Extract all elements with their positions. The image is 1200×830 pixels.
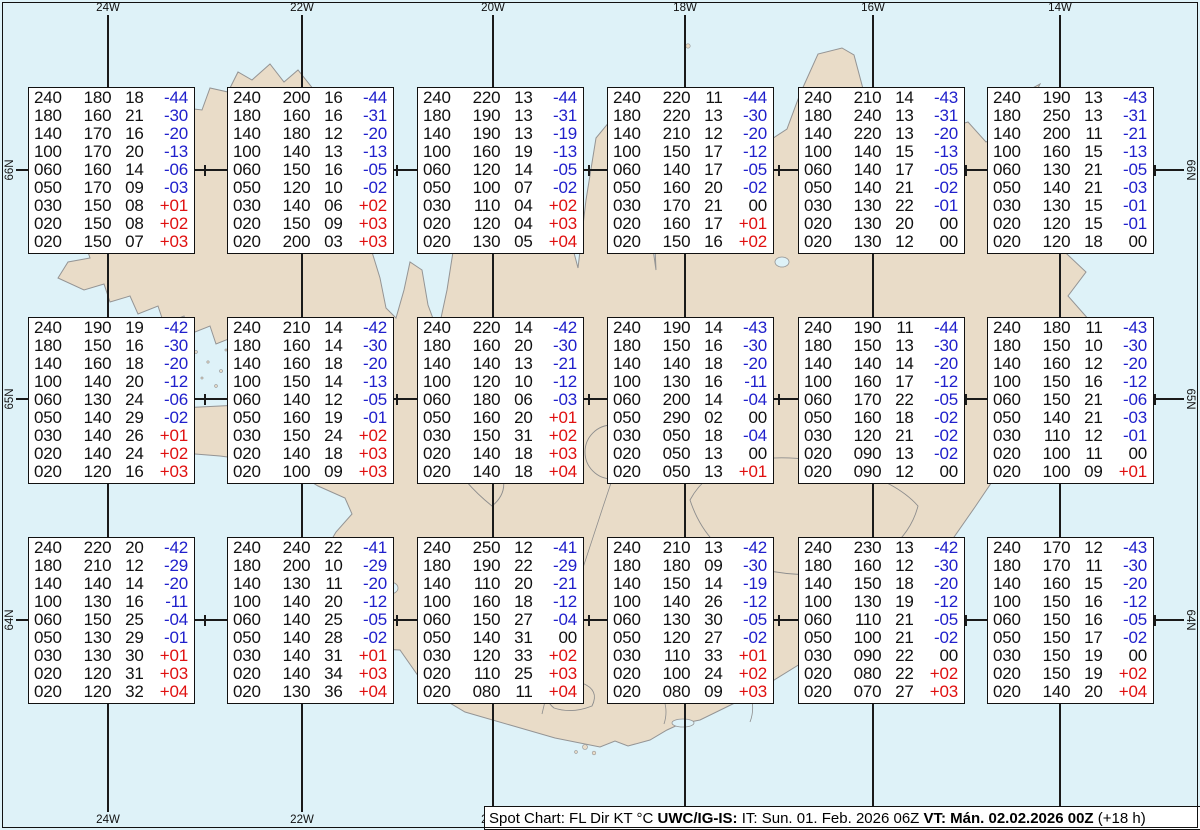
station-data-row: 02014018+04 xyxy=(423,463,577,481)
station-data-row: 06014017-05 xyxy=(613,161,767,179)
fl-value: 140 xyxy=(423,575,456,593)
longitude-label: 24W xyxy=(94,814,122,827)
temp-value: +04 xyxy=(540,683,577,701)
wind-speed-value: 12 xyxy=(889,233,914,251)
wind-speed-value: 26 xyxy=(698,593,723,611)
fl-value: 100 xyxy=(34,593,67,611)
station-data-row: 24022014-42 xyxy=(423,319,577,337)
wind-speed-value: 04 xyxy=(508,215,533,233)
temp-value: +03 xyxy=(350,463,387,481)
wind-dir-value: 160 xyxy=(74,161,111,179)
station-data-row: 0300902200 xyxy=(804,647,958,665)
temp-value: +03 xyxy=(540,445,577,463)
station-data-box: 24021014-4218016014-3014016018-201001501… xyxy=(227,317,394,484)
wind-speed-value: 24 xyxy=(318,427,343,445)
wind-speed-value: 06 xyxy=(318,197,343,215)
wind-speed-value: 13 xyxy=(698,107,723,125)
temp-value: -13 xyxy=(1110,143,1147,161)
wind-dir-value: 160 xyxy=(273,355,310,373)
wind-dir-value: 220 xyxy=(74,539,111,557)
wind-dir-value: 150 xyxy=(653,337,690,355)
wind-dir-value: 140 xyxy=(653,161,690,179)
station-data-row: 02008011+04 xyxy=(423,683,577,701)
wind-dir-value: 120 xyxy=(463,373,500,391)
half-degree-tick xyxy=(588,615,589,626)
wind-speed-value: 11 xyxy=(1078,319,1103,337)
temp-value: -30 xyxy=(1110,337,1147,355)
temp-value: -30 xyxy=(151,107,188,125)
wind-dir-value: 140 xyxy=(653,355,690,373)
wind-dir-value: 130 xyxy=(653,373,690,391)
station-data-row: 14018012-20 xyxy=(233,125,387,143)
temp-value: +03 xyxy=(151,665,188,683)
wind-speed-value: 02 xyxy=(698,409,723,427)
temp-value: 00 xyxy=(1110,233,1147,251)
fl-value: 240 xyxy=(804,539,837,557)
station-data-row: 02013036+04 xyxy=(233,683,387,701)
fl-value: 180 xyxy=(34,107,67,125)
fl-value: 240 xyxy=(233,89,266,107)
wind-dir-value: 130 xyxy=(74,391,111,409)
station-data-row: 06020014-04 xyxy=(613,391,767,409)
station-data-row: 24019013-43 xyxy=(993,89,1147,107)
temp-value: +03 xyxy=(540,665,577,683)
wind-speed-value: 21 xyxy=(889,629,914,647)
station-data-row: 06014025-05 xyxy=(233,611,387,629)
fl-value: 020 xyxy=(613,215,646,233)
temp-value: -04 xyxy=(540,611,577,629)
temp-value: -42 xyxy=(151,539,188,557)
station-data-box: 24022014-4218016020-3014014013-211001201… xyxy=(417,317,584,484)
wind-speed-value: 19 xyxy=(318,409,343,427)
wind-dir-value: 200 xyxy=(273,89,310,107)
fl-value: 030 xyxy=(613,427,646,445)
wind-speed-value: 12 xyxy=(698,125,723,143)
wind-speed-value: 16 xyxy=(698,233,723,251)
station-data-box: 24022013-4418019013-3114019013-191001601… xyxy=(417,87,584,254)
wind-speed-value: 29 xyxy=(119,409,144,427)
wind-speed-value: 31 xyxy=(508,629,533,647)
wind-dir-value: 140 xyxy=(463,463,500,481)
fl-value: 050 xyxy=(34,179,67,197)
fl-value: 240 xyxy=(613,319,646,337)
wind-dir-value: 140 xyxy=(74,575,111,593)
station-data-box: 24024022-4118020010-2914013011-201001402… xyxy=(227,537,394,704)
temp-value: +02 xyxy=(151,215,188,233)
fl-value: 180 xyxy=(233,557,266,575)
station-data-row: 05014021-03 xyxy=(993,409,1147,427)
wind-dir-value: 150 xyxy=(844,337,881,355)
station-data-row: 14014014-20 xyxy=(804,355,958,373)
wind-dir-value: 160 xyxy=(653,215,690,233)
wind-speed-value: 34 xyxy=(318,665,343,683)
wind-dir-value: 160 xyxy=(844,373,881,391)
fl-value: 020 xyxy=(233,463,266,481)
latitude-label: 65N xyxy=(1184,387,1196,410)
fl-value: 020 xyxy=(993,233,1026,251)
latitude-label: 66N xyxy=(1184,158,1196,181)
wind-speed-value: 12 xyxy=(889,463,914,481)
wind-speed-value: 19 xyxy=(1078,665,1103,683)
station-data-row: 02015007+03 xyxy=(34,233,188,251)
wind-dir-value: 160 xyxy=(273,337,310,355)
wind-dir-value: 150 xyxy=(1033,391,1070,409)
fl-value: 030 xyxy=(993,197,1026,215)
fl-value: 140 xyxy=(804,575,837,593)
wind-dir-value: 090 xyxy=(844,463,881,481)
station-data-row: 14016012-20 xyxy=(993,355,1147,373)
fl-value: 020 xyxy=(34,683,67,701)
wind-speed-value: 21 xyxy=(889,611,914,629)
wind-dir-value: 110 xyxy=(844,611,881,629)
wind-speed-value: 13 xyxy=(508,89,533,107)
temp-value: +03 xyxy=(151,233,188,251)
fl-value: 240 xyxy=(34,539,67,557)
station-data-box: 24018018-4418016021-3014017016-201001702… xyxy=(28,87,195,254)
station-data-row: 02012032+04 xyxy=(34,683,188,701)
temp-value: -30 xyxy=(730,107,767,125)
wind-speed-value: 13 xyxy=(1078,89,1103,107)
fl-value: 050 xyxy=(233,629,266,647)
temp-value: 00 xyxy=(730,197,767,215)
fl-value: 180 xyxy=(423,557,456,575)
wind-speed-value: 15 xyxy=(1078,143,1103,161)
station-data-row: 02014020+04 xyxy=(993,683,1147,701)
wind-speed-value: 20 xyxy=(1078,683,1103,701)
temp-value: -20 xyxy=(350,355,387,373)
station-data-row: 03013015-01 xyxy=(993,197,1147,215)
wind-speed-value: 20 xyxy=(889,215,914,233)
station-data-row: 06015025-04 xyxy=(34,611,188,629)
fl-value: 180 xyxy=(993,107,1026,125)
temp-value: -31 xyxy=(540,107,577,125)
wind-speed-value: 32 xyxy=(119,683,144,701)
wind-dir-value: 200 xyxy=(273,557,310,575)
wind-dir-value: 210 xyxy=(653,125,690,143)
fl-value: 020 xyxy=(613,665,646,683)
station-data-box: 24021013-4218018009-3014015014-191001402… xyxy=(607,537,774,704)
footer-text-segment: UWC/IG-IS: xyxy=(658,810,738,827)
fl-value: 180 xyxy=(233,337,266,355)
temp-value: +01 xyxy=(540,409,577,427)
temp-value: +02 xyxy=(540,647,577,665)
temp-value: -20 xyxy=(151,575,188,593)
fl-value: 100 xyxy=(993,593,1026,611)
station-data-row: 24017012-43 xyxy=(993,539,1147,557)
station-data-row: 24022013-44 xyxy=(423,89,577,107)
fl-value: 140 xyxy=(804,125,837,143)
temp-value: -44 xyxy=(540,89,577,107)
station-data-row: 02005013+01 xyxy=(613,463,767,481)
temp-value: +01 xyxy=(151,647,188,665)
fl-value: 140 xyxy=(233,575,266,593)
wind-speed-value: 18 xyxy=(698,427,723,445)
fl-value: 240 xyxy=(423,319,456,337)
fl-value: 140 xyxy=(423,355,456,373)
station-data-row: 05014029-02 xyxy=(34,409,188,427)
temp-value: -02 xyxy=(921,445,958,463)
station-data-row: 02015019+02 xyxy=(993,665,1147,683)
half-degree-tick xyxy=(965,615,966,626)
footer-text-segment: VT: Mán. 02.02.2026 00Z xyxy=(924,810,1094,827)
wind-dir-value: 150 xyxy=(1033,629,1070,647)
fl-value: 140 xyxy=(993,575,1026,593)
wind-dir-value: 130 xyxy=(273,683,310,701)
wind-speed-value: 18 xyxy=(318,445,343,463)
fl-value: 030 xyxy=(804,197,837,215)
fl-value: 060 xyxy=(993,611,1026,629)
station-data-row: 02012015-01 xyxy=(993,215,1147,233)
fl-value: 240 xyxy=(613,539,646,557)
wind-dir-value: 130 xyxy=(463,233,500,251)
fl-value: 020 xyxy=(804,463,837,481)
fl-value: 060 xyxy=(233,611,266,629)
wind-speed-value: 17 xyxy=(698,215,723,233)
fl-value: 180 xyxy=(233,107,266,125)
temp-value: +03 xyxy=(921,683,958,701)
wind-dir-value: 250 xyxy=(1033,107,1070,125)
temp-value: -13 xyxy=(350,143,387,161)
station-data-row: 02010024+02 xyxy=(613,665,767,683)
temp-value: +02 xyxy=(350,197,387,215)
wind-dir-value: 250 xyxy=(463,539,500,557)
fl-value: 140 xyxy=(993,355,1026,373)
wind-speed-value: 20 xyxy=(318,593,343,611)
station-data-row: 24021014-43 xyxy=(804,89,958,107)
fl-value: 050 xyxy=(804,409,837,427)
wind-speed-value: 13 xyxy=(698,463,723,481)
wind-speed-value: 15 xyxy=(1078,215,1103,233)
station-data-row: 05014028-02 xyxy=(233,629,387,647)
temp-value: -01 xyxy=(1110,427,1147,445)
fl-value: 180 xyxy=(613,557,646,575)
station-data-row: 02015016+02 xyxy=(613,233,767,251)
wind-dir-value: 140 xyxy=(463,629,500,647)
fl-value: 100 xyxy=(423,593,456,611)
fl-value: 050 xyxy=(993,409,1026,427)
wind-speed-value: 21 xyxy=(1078,409,1103,427)
station-data-row: 06017022-05 xyxy=(804,391,958,409)
wind-speed-value: 22 xyxy=(889,647,914,665)
wind-dir-value: 080 xyxy=(463,683,500,701)
station-data-box: 24019019-4218015016-3014016018-201001402… xyxy=(28,317,195,484)
temp-value: -12 xyxy=(1110,593,1147,611)
half-degree-tick xyxy=(1154,165,1155,176)
temp-value: -02 xyxy=(350,179,387,197)
station-data-box: 24019011-4418015013-3014014014-201001601… xyxy=(798,317,965,484)
wind-dir-value: 100 xyxy=(844,629,881,647)
station-data-row: 05012027-02 xyxy=(613,629,767,647)
wind-speed-value: 05 xyxy=(508,233,533,251)
wind-speed-value: 12 xyxy=(1078,355,1103,373)
fl-value: 060 xyxy=(613,391,646,409)
wind-dir-value: 170 xyxy=(653,197,690,215)
fl-value: 240 xyxy=(993,319,1026,337)
temp-value: +03 xyxy=(151,463,188,481)
station-data-row: 0201302000 xyxy=(804,215,958,233)
fl-value: 020 xyxy=(804,233,837,251)
fl-value: 100 xyxy=(233,593,266,611)
temp-value: +02 xyxy=(540,427,577,445)
temp-value: -31 xyxy=(921,107,958,125)
wind-dir-value: 190 xyxy=(653,319,690,337)
station-data-row: 06015021-06 xyxy=(993,391,1147,409)
footer-info-bar: Spot Chart: FL Dir KT °C UWC/IG-IS: IT: … xyxy=(484,806,1200,830)
wind-dir-value: 140 xyxy=(844,179,881,197)
wind-dir-value: 140 xyxy=(844,143,881,161)
wind-dir-value: 090 xyxy=(844,647,881,665)
temp-value: -41 xyxy=(540,539,577,557)
wind-speed-value: 15 xyxy=(889,143,914,161)
wind-dir-value: 170 xyxy=(1033,539,1070,557)
wind-dir-value: 130 xyxy=(653,611,690,629)
station-data-row: 06012014-05 xyxy=(423,161,577,179)
temp-value: -30 xyxy=(151,337,188,355)
wind-dir-value: 100 xyxy=(273,463,310,481)
temp-value: +02 xyxy=(1110,665,1147,683)
fl-value: 180 xyxy=(993,337,1026,355)
half-degree-tick xyxy=(204,165,205,176)
wind-dir-value: 120 xyxy=(463,161,500,179)
wind-dir-value: 200 xyxy=(1033,125,1070,143)
wind-dir-value: 190 xyxy=(844,319,881,337)
wind-speed-value: 22 xyxy=(889,391,914,409)
wind-dir-value: 210 xyxy=(74,557,111,575)
temp-value: -02 xyxy=(350,629,387,647)
temp-value: -20 xyxy=(151,355,188,373)
wind-dir-value: 180 xyxy=(74,89,111,107)
wind-dir-value: 160 xyxy=(844,409,881,427)
wind-speed-value: 21 xyxy=(889,179,914,197)
wind-speed-value: 26 xyxy=(119,427,144,445)
station-data-row: 02008022+02 xyxy=(804,665,958,683)
wind-speed-value: 08 xyxy=(119,197,144,215)
wind-speed-value: 20 xyxy=(698,179,723,197)
fl-value: 020 xyxy=(423,233,456,251)
wind-dir-value: 160 xyxy=(463,593,500,611)
station-data-row: 24018018-44 xyxy=(34,89,188,107)
wind-dir-value: 150 xyxy=(273,161,310,179)
wind-speed-value: 28 xyxy=(318,629,343,647)
station-data-row: 06018006-03 xyxy=(423,391,577,409)
wind-speed-value: 18 xyxy=(889,409,914,427)
station-data-row: 10014015-13 xyxy=(804,143,958,161)
temp-value: +01 xyxy=(151,427,188,445)
wind-speed-value: 20 xyxy=(119,373,144,391)
wind-speed-value: 18 xyxy=(508,463,533,481)
temp-value: 00 xyxy=(921,215,958,233)
wind-dir-value: 110 xyxy=(463,665,500,683)
station-data-row: 03015024+02 xyxy=(233,427,387,445)
fl-value: 020 xyxy=(423,683,456,701)
station-data-row: 02012004+03 xyxy=(423,215,577,233)
wind-dir-value: 170 xyxy=(1033,557,1070,575)
wind-speed-value: 31 xyxy=(119,665,144,683)
temp-value: -05 xyxy=(730,611,767,629)
wind-speed-value: 21 xyxy=(1078,391,1103,409)
station-data-row: 10013016-11 xyxy=(613,373,767,391)
station-data-row: 10016019-13 xyxy=(423,143,577,161)
temp-value: -03 xyxy=(1110,409,1147,427)
temp-value: -30 xyxy=(730,557,767,575)
fl-value: 020 xyxy=(34,215,67,233)
fl-value: 050 xyxy=(34,409,67,427)
temp-value: +01 xyxy=(730,463,767,481)
temp-value: 00 xyxy=(921,647,958,665)
temp-value: -02 xyxy=(730,629,767,647)
spot-chart-canvas: 24W24W22W22W20W20W18W18W16W16W14W14W66N6… xyxy=(0,0,1200,830)
fl-value: 100 xyxy=(613,593,646,611)
wind-speed-value: 33 xyxy=(698,647,723,665)
wind-speed-value: 16 xyxy=(698,373,723,391)
temp-value: -01 xyxy=(350,409,387,427)
wind-dir-value: 100 xyxy=(1033,445,1070,463)
latitude-label: 66N xyxy=(4,158,16,181)
wind-dir-value: 130 xyxy=(844,593,881,611)
wind-speed-value: 30 xyxy=(119,647,144,665)
wind-speed-value: 27 xyxy=(508,611,533,629)
wind-dir-value: 220 xyxy=(653,89,690,107)
temp-value: +03 xyxy=(350,445,387,463)
wind-dir-value: 080 xyxy=(844,665,881,683)
station-data-row: 18018009-30 xyxy=(613,557,767,575)
station-data-row: 18020010-29 xyxy=(233,557,387,575)
wind-speed-value: 12 xyxy=(1078,539,1103,557)
temp-value: -12 xyxy=(921,593,958,611)
station-data-row: 14022013-20 xyxy=(804,125,958,143)
station-data-row: 03014026+01 xyxy=(34,427,188,445)
half-degree-tick xyxy=(778,394,779,405)
fl-value: 060 xyxy=(804,391,837,409)
wind-speed-value: 18 xyxy=(318,355,343,373)
temp-value: -11 xyxy=(730,373,767,391)
wind-dir-value: 160 xyxy=(463,337,500,355)
wind-dir-value: 190 xyxy=(463,125,500,143)
wind-dir-value: 120 xyxy=(74,665,111,683)
temp-value: -42 xyxy=(540,319,577,337)
station-data-row: 06013024-06 xyxy=(34,391,188,409)
wind-speed-value: 33 xyxy=(508,647,533,665)
wind-dir-value: 140 xyxy=(273,593,310,611)
half-degree-tick xyxy=(204,615,205,626)
fl-value: 100 xyxy=(423,373,456,391)
wind-speed-value: 08 xyxy=(119,215,144,233)
fl-value: 240 xyxy=(423,89,456,107)
station-data-box: 24019013-4318025013-3114020011-211001601… xyxy=(987,87,1154,254)
temp-value: -42 xyxy=(730,539,767,557)
station-data-row: 10016017-12 xyxy=(804,373,958,391)
wind-dir-value: 150 xyxy=(74,233,111,251)
wind-dir-value: 120 xyxy=(844,427,881,445)
wind-dir-value: 150 xyxy=(273,215,310,233)
fl-value: 050 xyxy=(993,629,1026,647)
wind-dir-value: 240 xyxy=(844,107,881,125)
temp-value: -01 xyxy=(1110,197,1147,215)
temp-value: -13 xyxy=(540,143,577,161)
station-data-row: 10014026-12 xyxy=(613,593,767,611)
temp-value: +02 xyxy=(540,197,577,215)
fl-value: 020 xyxy=(233,215,266,233)
station-data-row: 05017009-03 xyxy=(34,179,188,197)
fl-value: 030 xyxy=(423,647,456,665)
wind-dir-value: 170 xyxy=(74,179,111,197)
station-data-row: 14016018-20 xyxy=(233,355,387,373)
wind-speed-value: 11 xyxy=(508,683,533,701)
temp-value: -20 xyxy=(151,125,188,143)
fl-value: 050 xyxy=(233,409,266,427)
temp-value: +01 xyxy=(730,647,767,665)
wind-speed-value: 13 xyxy=(508,355,533,373)
